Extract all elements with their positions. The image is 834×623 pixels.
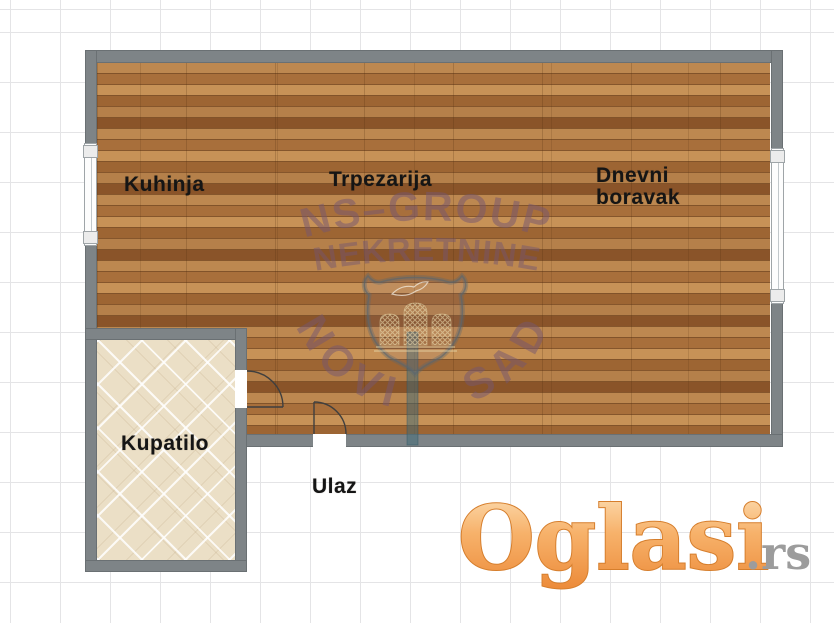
window-sash-top [83,145,98,158]
window-symbol-right [771,148,784,304]
window-sash-top [770,150,785,163]
window-sash-bottom [770,289,785,302]
wall-top [85,50,783,63]
room-label-ulaz: Ulaz [312,476,357,498]
room-label-kuhinja: Kuhinja [124,174,205,196]
window-pane-line [91,145,92,244]
window-symbol-left [84,143,97,246]
logo-wordmark: Oglasi [458,487,770,590]
bathroom-door-opening [235,370,247,408]
wall-bathroom-right [235,328,247,572]
wall-left [85,50,97,572]
window-pane-line [778,150,779,302]
room-label-kupatilo: Kupatilo [121,433,209,455]
logo-tld: .rs [745,526,811,580]
wall-bathroom-bottom [85,560,247,572]
room-label-trpezarija: Trpezarija [329,169,432,191]
entrance-door-opening [313,434,346,447]
room-label-dnevni-boravak: Dnevni boravak [596,165,696,209]
window-sash-bottom [83,231,98,244]
oglasi-rs-logo: Oglasi .rs [450,487,830,612]
wall-bathroom-top [85,328,247,340]
floorplan-canvas: NS–GROUP NEKRETNINE NOVI SAD Kuhinja Trp… [0,0,834,623]
